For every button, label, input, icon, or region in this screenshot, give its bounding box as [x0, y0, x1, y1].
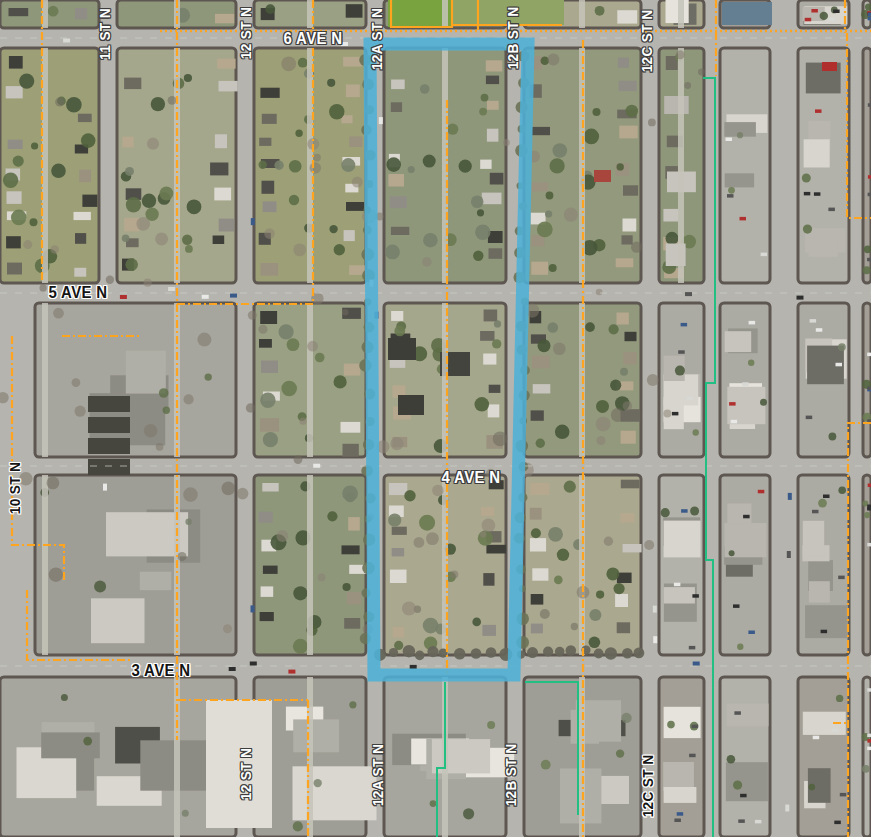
street-label-5-ave-n: 5 AVE N [48, 283, 107, 303]
street-label-12c-st-n-top: 12C ST N [638, 10, 656, 73]
street-label-11-st-n: 11 ST N [96, 8, 114, 60]
street-label-12-st-n-top: 12 ST N [237, 7, 255, 59]
street-label-12b-st-n-bottom: 12B ST N [502, 744, 520, 807]
street-label-10-st-n: 10 ST N [6, 462, 24, 514]
street-label-6-ave-n: 6 AVE N [283, 29, 342, 49]
street-label-4-ave-n: 4 AVE N [441, 468, 500, 488]
aerial-map[interactable]: 6 AVE N 5 AVE N 4 AVE N 3 AVE N 11 ST N … [0, 0, 871, 837]
street-label-12a-st-n-top: 12A ST N [368, 8, 386, 70]
street-label-12c-st-n-bottom: 12C ST N [639, 755, 657, 818]
street-label-12b-st-n-top: 12B ST N [504, 7, 522, 70]
map-canvas [0, 0, 871, 837]
street-label-12-st-n-bottom: 12 ST N [237, 748, 255, 800]
street-label-12a-st-n-bottom: 12A ST N [369, 744, 387, 806]
street-label-3-ave-n: 3 AVE N [131, 661, 190, 681]
